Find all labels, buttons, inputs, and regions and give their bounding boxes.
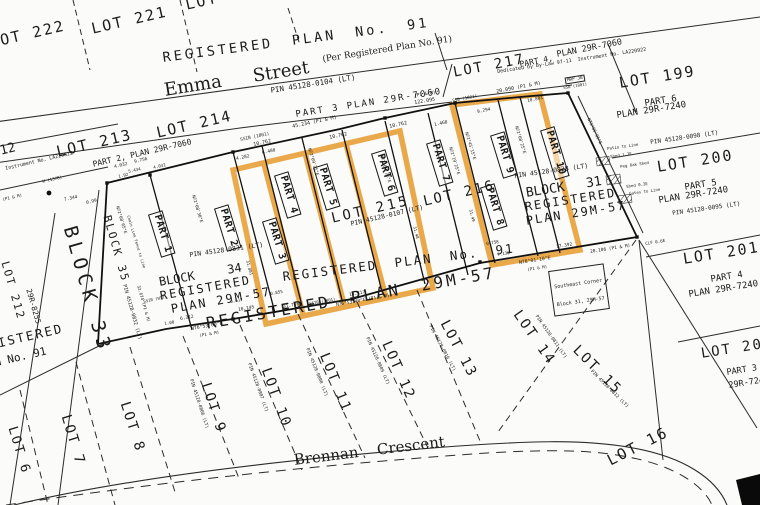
survey-plan: LOT 222 LOT 221 LOT 220 REGISTERED PLAN … (0, 0, 760, 505)
southeast-corner-line1: Southeast Corner (554, 278, 603, 291)
corner-black-shape (736, 474, 760, 505)
southeast-corner-line2: Block 31, 29M-57 (556, 296, 605, 309)
label-southeast-corner-box: Southeast Corner Block 31, 29M-57 (548, 263, 610, 316)
